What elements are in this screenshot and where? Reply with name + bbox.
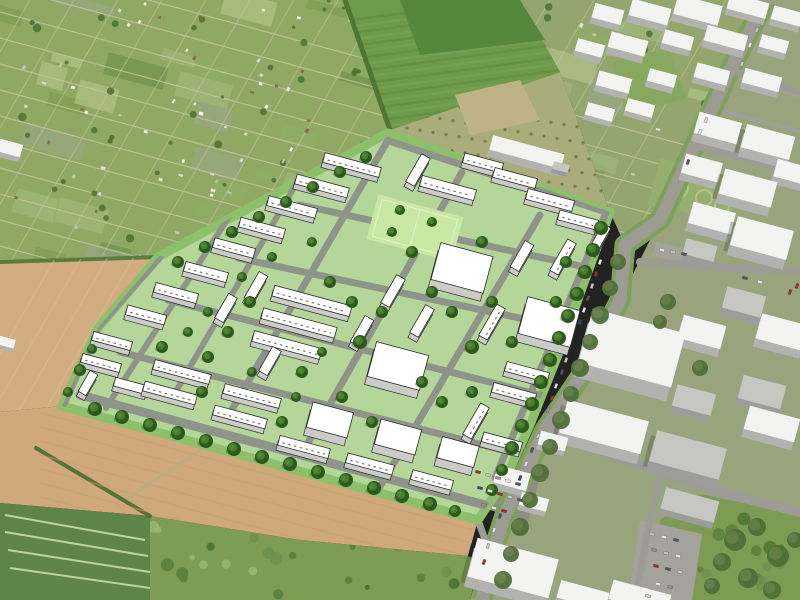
bush <box>206 542 214 550</box>
tree-highlight <box>581 268 585 272</box>
tree-highlight <box>224 328 228 332</box>
tree-highlight <box>370 484 374 488</box>
orchard-tree-dot <box>568 139 571 142</box>
bush <box>189 555 195 561</box>
hedge-blob <box>214 140 222 148</box>
tree-highlight <box>239 274 242 277</box>
tree-highlight <box>562 258 566 262</box>
tree-highlight <box>428 288 432 292</box>
photo-tree-light <box>726 531 739 544</box>
orchard-tree-dot <box>503 128 506 131</box>
photo-tree <box>713 553 731 571</box>
photo-tree-light <box>553 412 564 423</box>
aerial-development-visualization <box>0 0 800 600</box>
tree-highlight <box>342 476 346 480</box>
photo-tree <box>563 386 579 402</box>
hedge-blob <box>64 61 68 65</box>
orchard-tree-dot <box>562 123 565 126</box>
tree-highlight <box>282 198 286 202</box>
tree-highlight <box>338 393 342 397</box>
hedge-blob <box>271 178 276 183</box>
tree-highlight <box>76 366 80 370</box>
photo-tree <box>522 492 538 508</box>
tree-highlight <box>368 418 372 422</box>
hedge-blob <box>260 108 267 115</box>
tree-highlight <box>146 421 150 425</box>
tree-highlight <box>356 338 360 342</box>
hedge-blob <box>223 183 227 187</box>
car <box>586 295 590 301</box>
tree-highlight <box>408 248 412 252</box>
bush <box>179 574 188 583</box>
tree-highlight <box>498 466 502 470</box>
orchard-tree-dot <box>581 141 584 144</box>
orchard-tree-dot <box>457 135 460 138</box>
photo-tree <box>610 254 626 270</box>
tree-highlight <box>89 346 92 349</box>
orchard-tree-dot <box>418 129 421 132</box>
orchard-tree-dot <box>555 137 558 140</box>
tree-highlight <box>319 349 322 352</box>
tree-highlight <box>204 353 208 357</box>
tree-highlight <box>309 239 312 242</box>
hedge-blob <box>52 187 58 193</box>
hedge-blob <box>342 6 345 9</box>
photo-tree <box>692 360 708 376</box>
tree-highlight <box>448 308 452 312</box>
orchard-tree-dot <box>574 155 577 158</box>
tree-highlight <box>91 405 95 409</box>
tree-highlight <box>255 213 259 217</box>
tree-highlight <box>174 258 178 262</box>
tree-highlight <box>201 243 205 247</box>
photo-tree-light <box>654 316 662 324</box>
photo-tree <box>748 518 766 536</box>
hedge-blob <box>646 31 653 38</box>
tree-highlight <box>185 329 188 332</box>
photo-tree <box>660 294 676 310</box>
tree-highlight <box>293 394 296 397</box>
orchard-tree-dot <box>549 121 552 124</box>
tree-highlight <box>309 183 313 187</box>
orchard-tree-dot <box>575 125 578 128</box>
hedge-blob <box>126 234 134 242</box>
bush <box>751 545 762 556</box>
tree-highlight <box>508 338 512 342</box>
bush <box>222 559 231 568</box>
photo-tree-light <box>788 533 798 543</box>
scene-canvas <box>0 0 800 600</box>
photo-tree-light <box>764 582 775 593</box>
car <box>582 307 586 313</box>
orchard-tree-dot <box>542 135 545 138</box>
hedge-blob <box>91 127 97 133</box>
tree-highlight <box>451 507 455 511</box>
photo-tree <box>511 518 529 536</box>
hedge-blob <box>292 26 295 29</box>
hedge-blob <box>357 70 361 74</box>
tree-highlight <box>65 389 68 392</box>
tree-highlight <box>518 422 522 426</box>
photo-tree-light <box>583 335 593 345</box>
photo-tree-light <box>504 547 514 557</box>
photo-tree-light <box>603 281 613 291</box>
tree-highlight <box>573 290 577 294</box>
tree-highlight <box>397 207 400 210</box>
tree-highlight <box>118 413 122 417</box>
tree-highlight <box>418 378 422 382</box>
tree-highlight <box>362 153 366 157</box>
bush <box>417 573 426 582</box>
orchard-tree-dot <box>438 117 441 120</box>
photo-tree-light <box>564 387 574 397</box>
tree-highlight <box>298 368 302 372</box>
photo-tree <box>763 581 781 599</box>
photo-tree-light <box>693 361 703 371</box>
hedge-blob <box>25 132 30 137</box>
photo-tree-light <box>512 519 523 530</box>
tree-highlight <box>269 254 272 257</box>
bush <box>763 562 772 571</box>
hedge-blob <box>300 39 307 46</box>
photo-tree <box>767 545 789 567</box>
hedge-blob <box>103 215 109 221</box>
tree-highlight <box>597 224 601 228</box>
photo-tree <box>724 529 746 551</box>
tree-highlight <box>198 388 202 392</box>
photo-tree-light <box>661 295 671 305</box>
tree-highlight <box>426 500 430 504</box>
orchard-tree-dot <box>547 180 550 183</box>
bush <box>263 547 275 559</box>
hedge-blob <box>267 65 273 71</box>
bush <box>345 576 352 583</box>
photo-tree <box>571 359 589 377</box>
bush <box>441 567 451 577</box>
bush <box>737 513 750 526</box>
hedge-blob <box>99 204 106 211</box>
orchard-tree-dot <box>405 126 408 129</box>
tree-highlight <box>389 229 392 232</box>
photo-tree-light <box>543 440 553 450</box>
tree-highlight <box>286 460 290 464</box>
hedge-blob <box>191 25 197 31</box>
hedge-blob <box>544 14 551 21</box>
orchard-tree-dot <box>593 173 596 176</box>
tree-highlight <box>202 437 206 441</box>
car <box>564 357 568 363</box>
bush <box>273 589 283 599</box>
bush <box>161 558 174 571</box>
tree-highlight <box>555 334 559 338</box>
tree-highlight <box>589 246 593 250</box>
hedge-blob <box>98 14 105 21</box>
tree-highlight <box>158 343 162 347</box>
hedge-blob <box>545 3 553 11</box>
tree-highlight <box>478 238 482 242</box>
tree-highlight <box>438 398 442 402</box>
orchard-tree-dot <box>587 157 590 160</box>
tree-highlight <box>537 378 541 382</box>
tree-highlight <box>564 312 568 316</box>
photo-tree <box>503 546 519 562</box>
tree-highlight <box>326 278 330 282</box>
orchard-tree-dot <box>580 171 583 174</box>
bush <box>199 560 208 569</box>
photo-tree-light <box>705 579 715 589</box>
tree-highlight <box>174 429 178 433</box>
bush <box>248 566 257 575</box>
bush <box>250 533 259 542</box>
photo-tree-light <box>749 519 760 530</box>
hedge-blob <box>169 141 173 145</box>
orchard-tree-dot <box>573 185 576 188</box>
tree-highlight <box>348 298 352 302</box>
photo-tree-light <box>740 570 752 582</box>
orchard-tree-dot <box>483 140 486 143</box>
photo-tree-light <box>532 465 543 476</box>
photo-tree <box>552 411 570 429</box>
bush <box>712 528 725 541</box>
photo-tree <box>738 568 758 588</box>
orchard-tree-dot <box>529 132 532 135</box>
tree-highlight <box>468 388 472 392</box>
photo-tree <box>494 571 512 589</box>
hedge-blob <box>33 24 42 33</box>
bush <box>289 552 297 560</box>
tree-highlight <box>488 298 492 302</box>
hedge-blob <box>30 20 35 25</box>
orchard-tree-dot <box>470 137 473 140</box>
tree-highlight <box>314 468 318 472</box>
tree-highlight <box>230 445 234 449</box>
photo-tree-light <box>611 255 621 265</box>
tree-highlight <box>336 168 340 172</box>
tree-highlight <box>258 453 262 457</box>
photo-tree <box>591 306 609 324</box>
tree-highlight <box>205 309 208 312</box>
tree-highlight <box>249 369 252 372</box>
hedge-blob <box>18 113 26 121</box>
orchard-tree-dot <box>451 119 454 122</box>
tree-highlight <box>552 298 556 302</box>
car <box>590 283 594 289</box>
tree-highlight <box>508 444 512 448</box>
photo-tree <box>653 315 667 329</box>
hedge-blob <box>323 8 327 12</box>
hedge-blob <box>61 179 66 184</box>
tree-highlight <box>246 298 250 302</box>
hedge-blob <box>112 20 119 27</box>
photo-tree-light <box>769 547 782 560</box>
photo-tree <box>704 578 720 594</box>
bush <box>702 568 712 578</box>
photo-tree <box>542 439 558 455</box>
tree-highlight <box>378 308 382 312</box>
hedge-blob <box>91 190 97 196</box>
orchard-tree-dot <box>431 131 434 134</box>
photo-tree-light <box>714 554 725 565</box>
orchard-tree-dot <box>516 130 519 133</box>
hedge-blob <box>155 170 160 175</box>
hedge-blob <box>109 135 114 140</box>
tree-highlight <box>546 356 550 360</box>
tree-highlight <box>398 492 402 496</box>
photo-tree-light <box>495 572 506 583</box>
car <box>554 383 558 389</box>
tree-highlight <box>278 418 282 422</box>
hedge-blob <box>107 87 114 94</box>
orchard-tree-dot <box>560 183 563 186</box>
photo-tree-light <box>523 493 533 503</box>
bush <box>449 578 460 589</box>
photo-tree-light <box>572 360 583 371</box>
tree-highlight <box>228 228 232 232</box>
photo-tree <box>582 334 598 350</box>
hedge-blob <box>298 76 305 83</box>
tree-highlight <box>468 343 472 347</box>
tree-highlight <box>528 400 532 404</box>
car <box>560 369 564 375</box>
car <box>594 271 598 277</box>
car <box>598 259 602 265</box>
photo-tree <box>531 464 549 482</box>
tree-highlight <box>429 219 432 222</box>
hedge-blob <box>190 111 197 118</box>
bush <box>365 585 370 590</box>
photo-tree <box>602 280 618 296</box>
hedge-blob <box>221 95 224 98</box>
orchard-tree-dot <box>586 187 589 190</box>
orchard-tree-dot <box>444 133 447 136</box>
photo-tree-light <box>592 307 603 318</box>
